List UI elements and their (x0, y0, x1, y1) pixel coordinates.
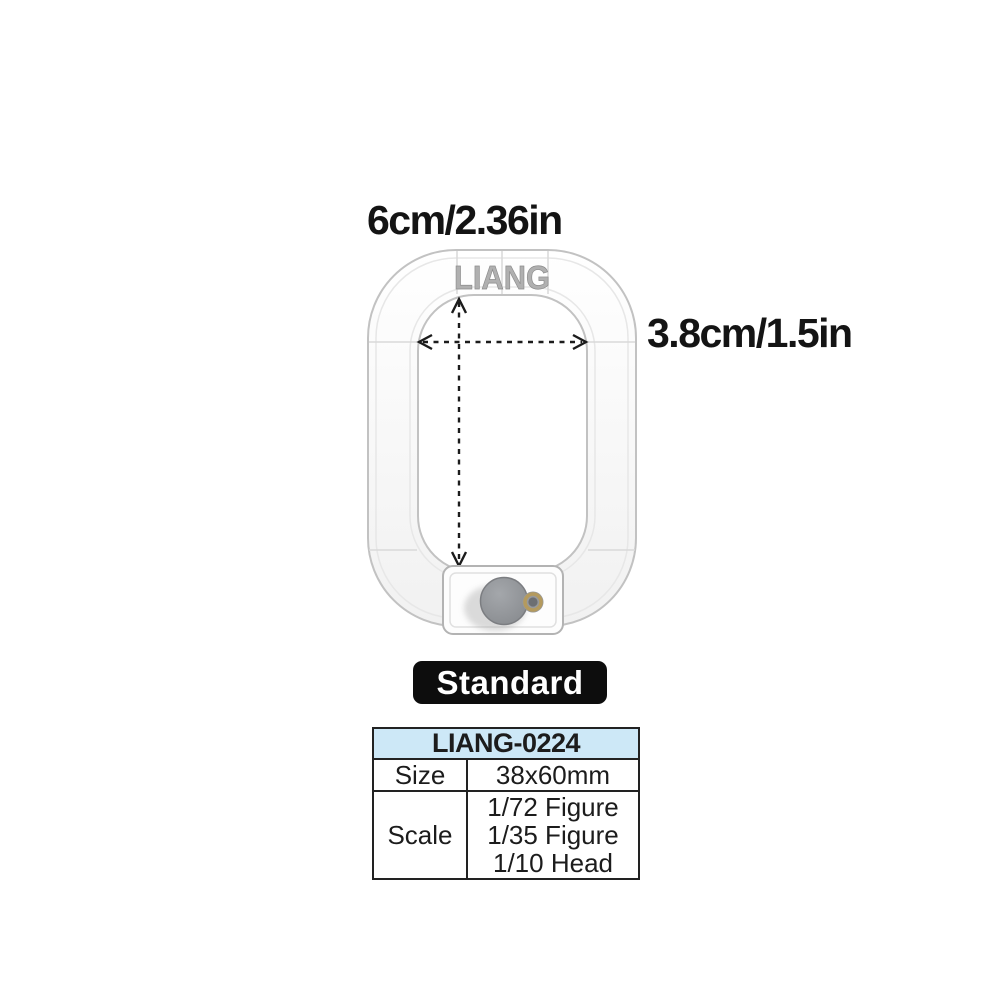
table-row-scale: Scale 1/72 Figure 1/35 Figure 1/10 Head (374, 792, 638, 878)
variant-badge: Standard (413, 661, 607, 704)
scale-value-2: 1/35 Figure (487, 821, 619, 849)
scale-row-values: 1/72 Figure 1/35 Figure 1/10 Head (468, 792, 638, 878)
tension-clamp (443, 566, 563, 634)
knob-icon (481, 578, 528, 625)
variant-badge-label: Standard (436, 664, 583, 702)
width-dimension-label: 6cm/2.36in (367, 198, 562, 242)
height-dimension-label: 3.8cm/1.5in (647, 311, 852, 355)
scale-value-1: 1/72 Figure (487, 793, 619, 821)
scale-row-label: Scale (374, 792, 468, 878)
spec-table-header: LIANG-0224 (374, 729, 638, 760)
frame-opening (418, 295, 587, 572)
table-row-size: Size 38x60mm (374, 760, 638, 792)
bearing-center (528, 597, 537, 606)
spec-table: LIANG-0224 Size 38x60mm Scale 1/72 Figur… (372, 727, 640, 880)
size-row-value: 38x60mm (468, 760, 638, 790)
page: LIANG 6cm/2.36in 3.8cm/1.5in Standard (0, 0, 1000, 1000)
brand-logo: LIANG (454, 259, 550, 296)
size-row-label: Size (374, 760, 468, 790)
scale-value-3: 1/10 Head (493, 849, 613, 877)
